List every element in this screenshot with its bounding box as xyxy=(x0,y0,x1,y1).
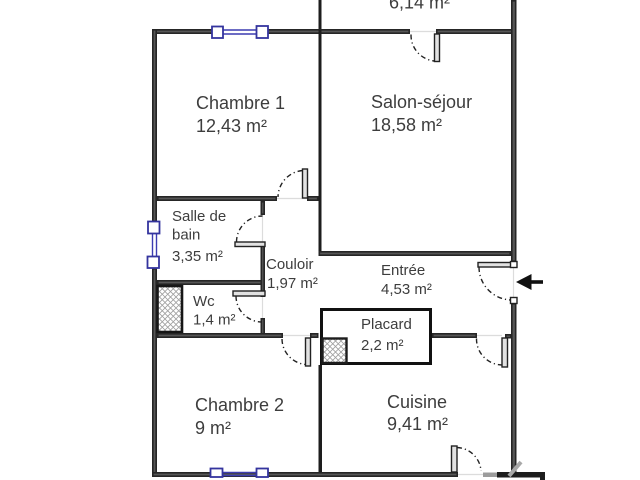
svg-text:Cuisine: Cuisine xyxy=(387,392,447,412)
svg-text:1,97 m²: 1,97 m² xyxy=(267,275,318,292)
svg-text:Salon-séjour: Salon-séjour xyxy=(371,92,472,112)
svg-text:Wc: Wc xyxy=(193,293,215,310)
svg-text:1,4 m²: 1,4 m² xyxy=(193,312,236,329)
svg-text:Couloir: Couloir xyxy=(266,256,314,273)
svg-text:9 m²: 9 m² xyxy=(195,418,231,438)
svg-text:4,53 m²: 4,53 m² xyxy=(381,281,432,298)
svg-text:bain: bain xyxy=(172,227,200,244)
svg-text:9,41 m²: 9,41 m² xyxy=(387,414,448,434)
svg-text:2,2 m²: 2,2 m² xyxy=(361,337,404,354)
svg-text:Salle de: Salle de xyxy=(172,208,226,225)
svg-text:Placard: Placard xyxy=(361,316,412,333)
svg-text:Chambre 2: Chambre 2 xyxy=(195,395,284,415)
svg-text:Chambre 1: Chambre 1 xyxy=(196,93,285,113)
svg-text:18,58 m²: 18,58 m² xyxy=(371,115,442,135)
svg-text:12,43 m²: 12,43 m² xyxy=(196,116,267,136)
svg-text:3,35 m²: 3,35 m² xyxy=(172,248,223,265)
svg-text:Entrée: Entrée xyxy=(381,262,425,279)
svg-text:6,14 m²: 6,14 m² xyxy=(389,0,450,13)
